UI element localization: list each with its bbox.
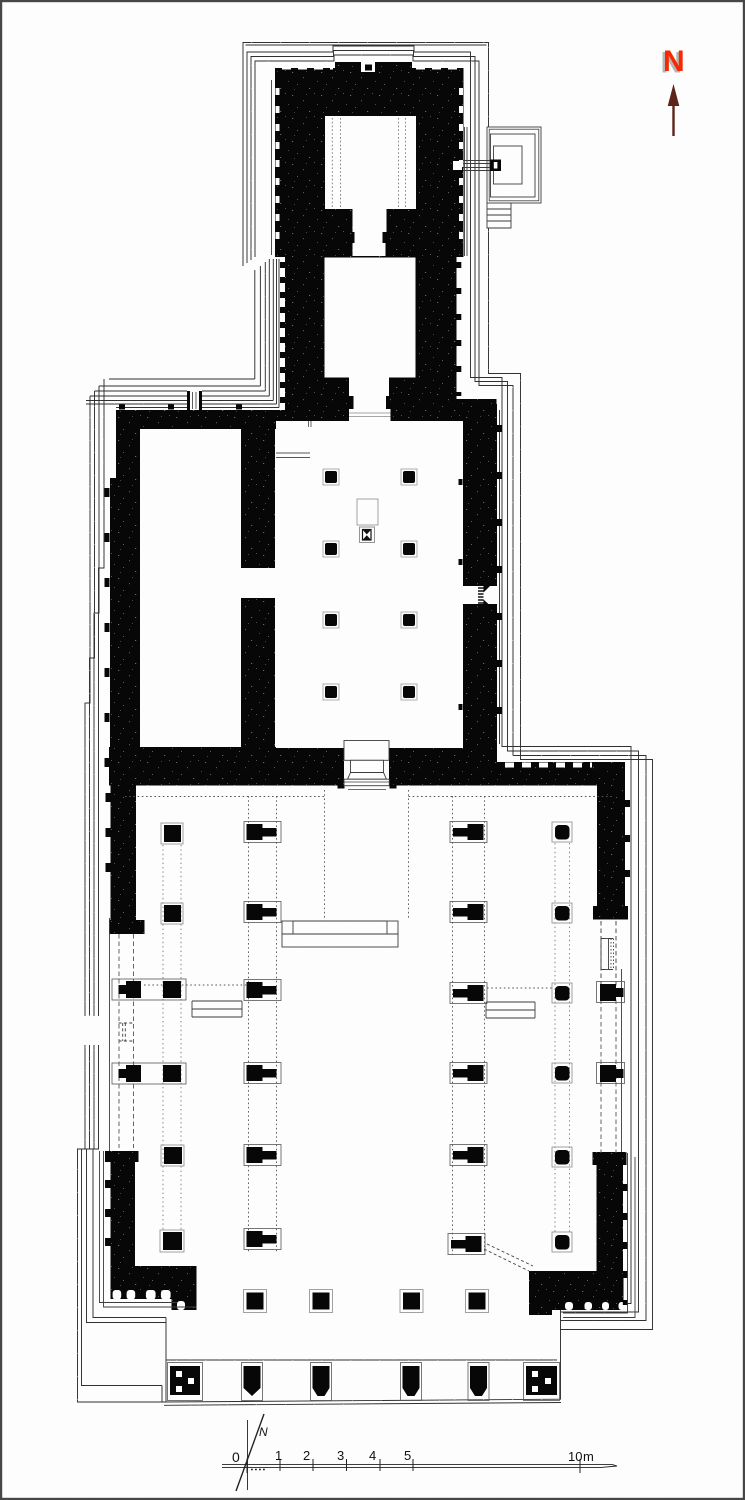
svg-text:10m: 10m [568,1449,594,1464]
svg-text:0: 0 [232,1449,240,1465]
svg-text:N: N [663,45,685,78]
svg-text:4: 4 [369,1448,376,1463]
svg-text:1: 1 [275,1448,282,1463]
svg-text:N: N [259,1425,268,1439]
svg-text:5: 5 [404,1448,411,1463]
svg-text:2: 2 [303,1448,310,1463]
svg-text:3: 3 [337,1448,344,1463]
